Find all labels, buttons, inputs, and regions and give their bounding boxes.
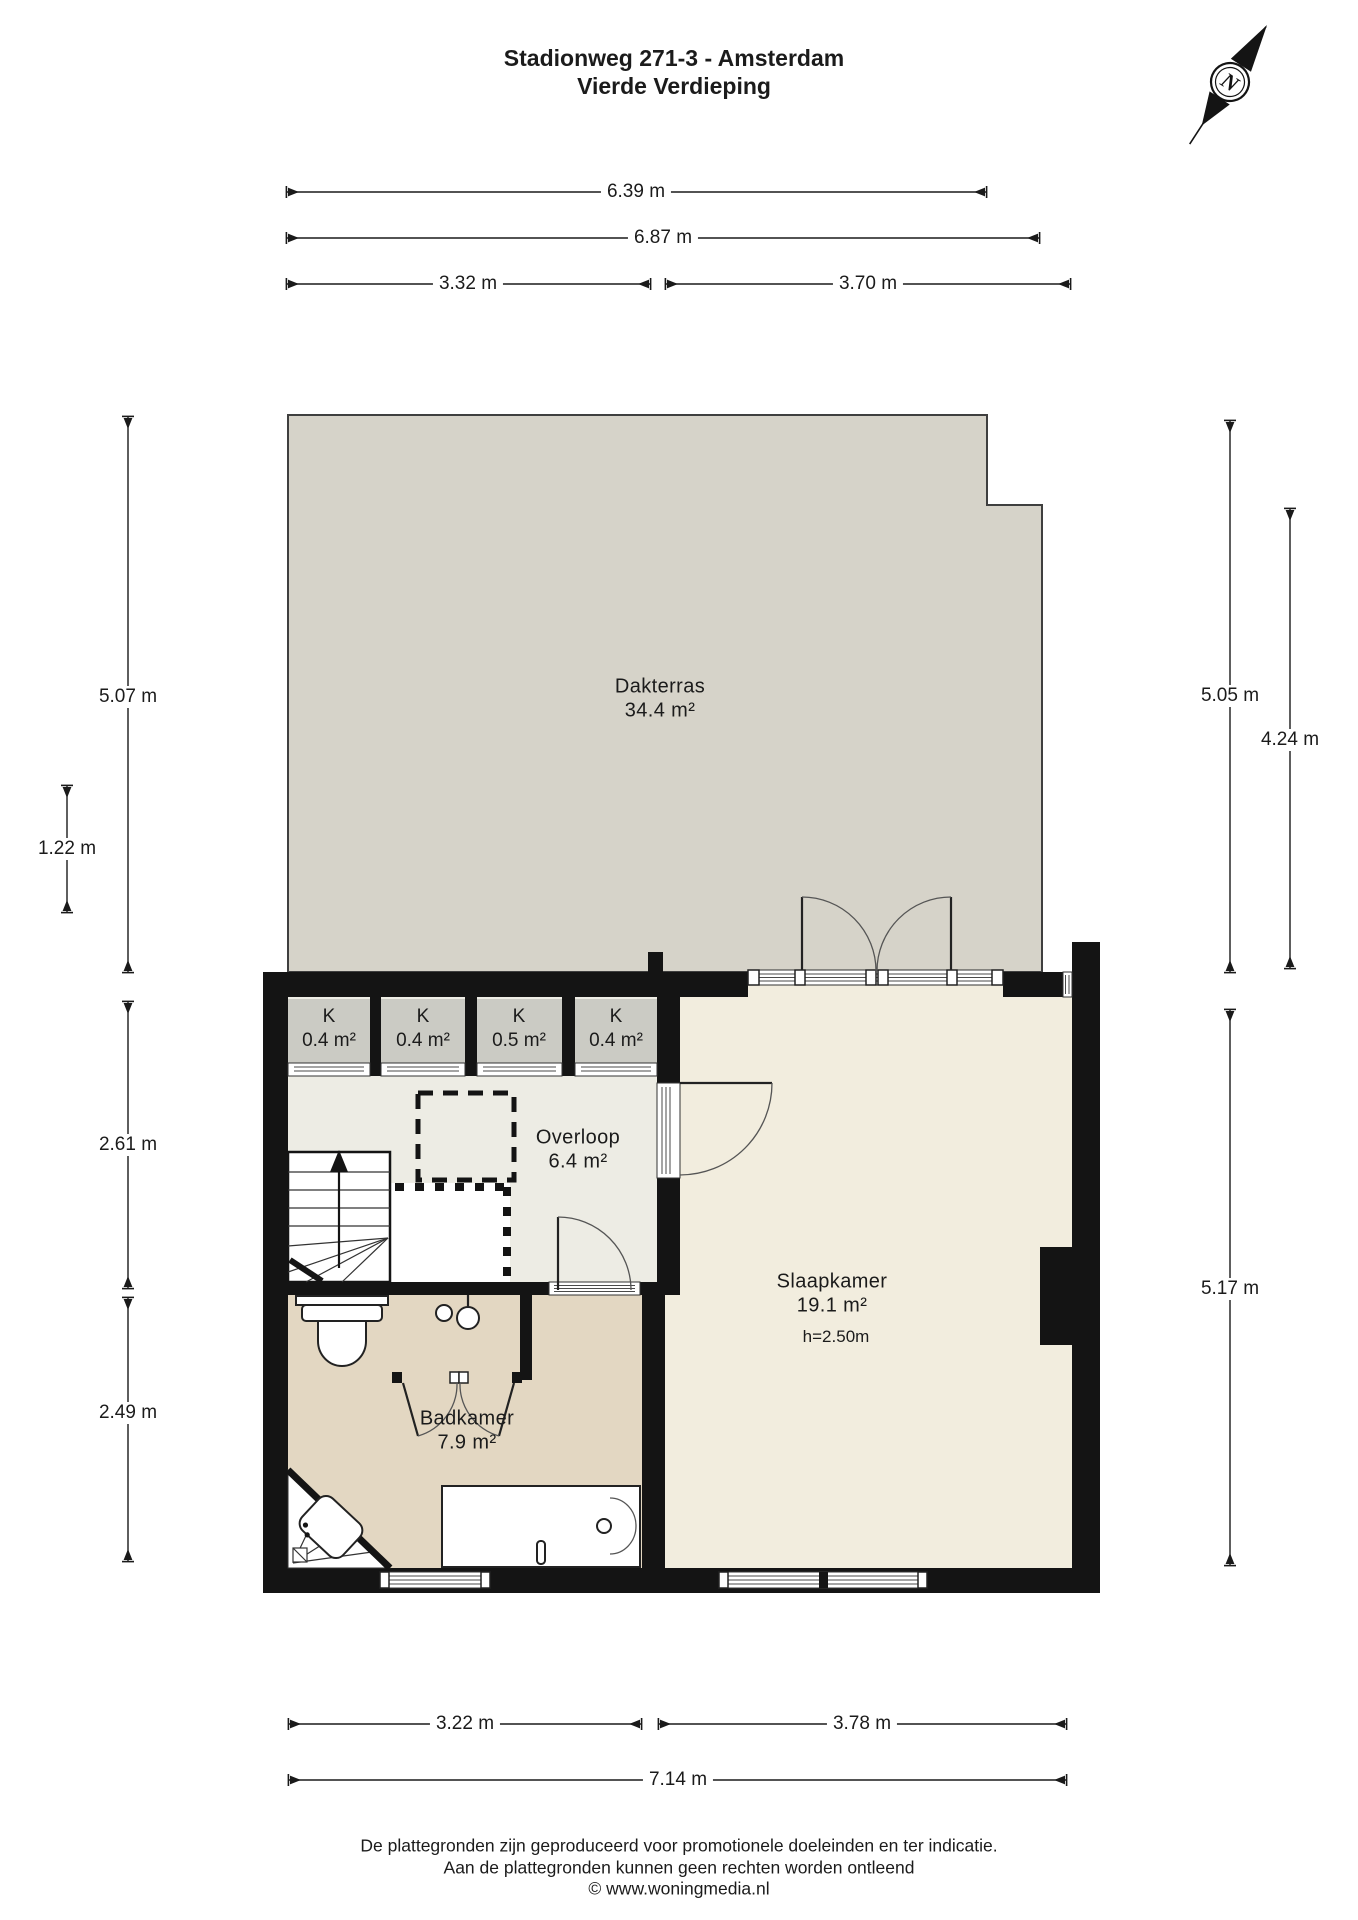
page-title: Stadionweg 271-3 - Amsterdam — [504, 44, 844, 72]
dim-left-small-label: 1.22 m — [32, 838, 102, 860]
closet-door — [381, 1063, 465, 1076]
closet-door — [477, 1063, 562, 1076]
closet1-name: K — [323, 1006, 336, 1028]
closet2-area: 0.4 m² — [396, 1030, 450, 1052]
dim-top-inner-label: 6.39 m — [601, 181, 671, 203]
dim-top-right-label: 3.70 m — [833, 273, 903, 295]
dim-right-rooms-label: 5.17 m — [1195, 1278, 1265, 1300]
copyright: © www.woningmedia.nl — [588, 1879, 769, 1900]
overloop-name: Overloop — [536, 1127, 620, 1150]
closet3-area: 0.5 m² — [492, 1030, 546, 1052]
sidelight-window — [1063, 972, 1072, 997]
dakterras-area: 34.4 m² — [625, 700, 696, 723]
dim-top-outer-label: 6.87 m — [628, 227, 698, 249]
dim-top-left-label: 3.32 m — [433, 273, 503, 295]
disclaimer-line2: Aan de plattegronden kunnen geen rechten… — [444, 1858, 915, 1879]
badkamer-window — [380, 1572, 490, 1588]
dim-left-overloop-label: 2.61 m — [93, 1134, 163, 1156]
closet4-name: K — [610, 1006, 623, 1028]
dim-left-terrace-label: 5.07 m — [93, 686, 163, 708]
closet-door — [288, 1063, 370, 1076]
floorplan-drawing: N — [0, 0, 1358, 1920]
closet2-name: K — [417, 1006, 430, 1028]
disclaimer-line1: De plattegronden zijn geproduceerd voor … — [360, 1836, 997, 1857]
slaapkamer-area: 19.1 m² — [797, 1295, 868, 1318]
dim-bottom-total-label: 7.14 m — [643, 1769, 713, 1791]
closet-door — [575, 1063, 657, 1076]
stairwell-void — [390, 1183, 512, 1282]
closet3-name: K — [513, 1006, 526, 1028]
closet4-area: 0.4 m² — [589, 1030, 643, 1052]
badkamer-area: 7.9 m² — [437, 1432, 496, 1455]
overloop-area: 6.4 m² — [548, 1151, 607, 1174]
dim-bottom-left-label: 3.22 m — [430, 1713, 500, 1735]
slaapkamer-ceiling-height: h=2.50m — [803, 1327, 870, 1347]
dim-right-section-label: 4.24 m — [1255, 729, 1325, 751]
slaapkamer-window — [719, 1572, 927, 1588]
page-subtitle: Vierde Verdieping — [577, 72, 771, 100]
north-arrow-compass: N — [1174, 15, 1283, 155]
dim-left-badkamer-label: 2.49 m — [93, 1402, 163, 1424]
dim-right-terrace-label: 5.05 m — [1195, 685, 1265, 707]
dakterras-name: Dakterras — [615, 676, 705, 699]
slaapkamer-name: Slaapkamer — [777, 1271, 888, 1294]
badkamer-name: Badkamer — [420, 1408, 514, 1431]
staircase — [288, 1150, 390, 1282]
dim-bottom-right-label: 3.78 m — [827, 1713, 897, 1735]
bathtub — [442, 1486, 640, 1567]
floorplan-page: N Stadionweg 271-3 - Amsterdam Vierde Ve… — [0, 0, 1358, 1920]
closet1-area: 0.4 m² — [302, 1030, 356, 1052]
